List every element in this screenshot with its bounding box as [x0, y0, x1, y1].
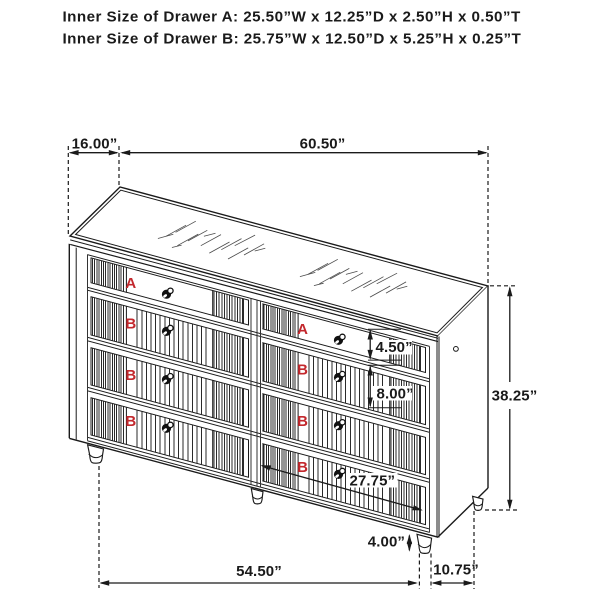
svg-text:27.75”: 27.75” — [350, 473, 396, 490]
svg-text:60.50”: 60.50” — [300, 136, 346, 153]
svg-text:B: B — [125, 367, 136, 384]
svg-text:B: B — [125, 315, 136, 332]
svg-text:B: B — [125, 413, 136, 430]
svg-text:B: B — [297, 413, 308, 430]
svg-text:Inner Size of Drawer A: 25.50”: Inner Size of Drawer A: 25.50”W x 12.25”… — [63, 9, 521, 26]
svg-text:4.50”: 4.50” — [376, 339, 413, 356]
svg-text:54.50”: 54.50” — [236, 563, 282, 580]
svg-text:A: A — [125, 275, 136, 292]
svg-text:A: A — [297, 321, 308, 338]
svg-text:B: B — [297, 361, 308, 378]
svg-text:10.75”: 10.75” — [433, 562, 479, 579]
svg-text:4.00”: 4.00” — [368, 534, 405, 551]
svg-text:Inner Size of Drawer B: 25.75”: Inner Size of Drawer B: 25.75”W x 12.50”… — [63, 31, 522, 48]
svg-text:16.00”: 16.00” — [72, 136, 118, 153]
svg-text:8.00”: 8.00” — [377, 385, 414, 402]
svg-text:38.25”: 38.25” — [492, 388, 538, 405]
svg-text:B: B — [297, 459, 308, 476]
